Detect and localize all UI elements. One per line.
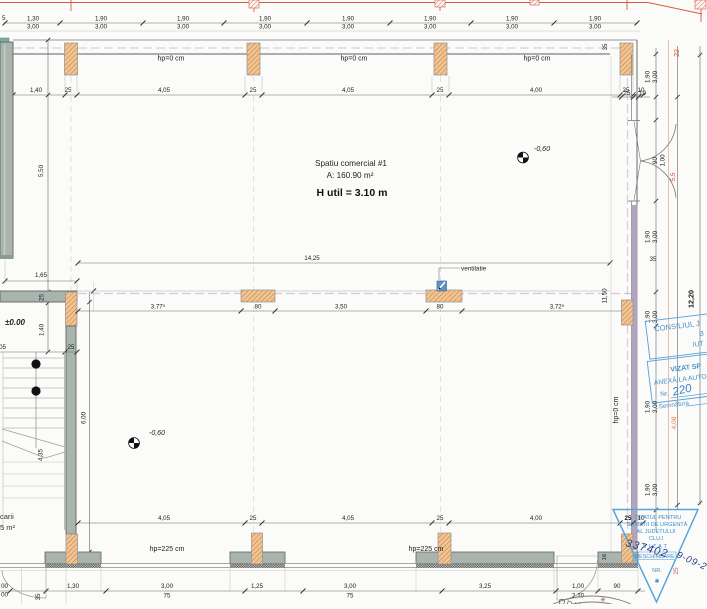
svg-text:3,00: 3,00: [342, 24, 355, 31]
svg-text:4,05: 4,05: [158, 515, 171, 522]
svg-text:4,08: 4,08: [671, 416, 678, 429]
svg-text:H util = 3.10 m: H util = 3.10 m: [317, 187, 388, 199]
svg-text:hp=0 cm: hp=0 cm: [523, 56, 550, 63]
svg-text:3,72⁵: 3,72⁵: [550, 304, 565, 311]
svg-text:3,00: 3,00: [506, 24, 519, 31]
svg-text:1,25: 1,25: [251, 583, 264, 590]
svg-text:3,00: 3,00: [161, 583, 174, 590]
svg-text:✱: ✱: [654, 578, 659, 585]
svg-text:75: 75: [164, 593, 171, 600]
svg-text:25: 25: [624, 90, 631, 97]
svg-text:5: 5: [2, 15, 6, 22]
svg-text:1,90: 1,90: [342, 16, 355, 23]
svg-text:3,00: 3,00: [424, 24, 437, 31]
svg-text:hp=0 cm: hp=0 cm: [613, 396, 620, 423]
svg-text:05: 05: [0, 344, 7, 351]
svg-text:80: 80: [437, 304, 444, 311]
svg-text:1,90: 1,90: [95, 16, 108, 23]
svg-text:3,00: 3,00: [27, 24, 40, 31]
svg-text:35: 35: [603, 43, 609, 50]
svg-text:5,5: 5,5: [670, 172, 677, 181]
svg-text:4,05: 4,05: [342, 515, 355, 522]
svg-text:Spatiu comercial #1: Spatiu comercial #1: [315, 159, 387, 168]
svg-text:25: 25: [250, 515, 257, 522]
svg-text:hp=0 cm: hp=0 cm: [157, 56, 184, 63]
svg-text:25: 25: [437, 515, 444, 522]
svg-text:22: 22: [674, 49, 681, 57]
svg-text:90: 90: [652, 157, 659, 164]
svg-text:1,90: 1,90: [645, 400, 652, 413]
svg-text:carii: carii: [0, 512, 14, 521]
svg-text:4,05: 4,05: [342, 87, 355, 94]
svg-text:3,00: 3,00: [652, 310, 659, 323]
svg-text:35: 35: [36, 593, 42, 600]
svg-text:AL JUDETULUI: AL JUDETULUI: [637, 529, 676, 535]
svg-text:5,50: 5,50: [38, 164, 45, 177]
svg-text:NR.: NR.: [652, 568, 662, 574]
svg-text:-0,60: -0,60: [149, 430, 165, 437]
svg-text:±0.00: ±0.00: [5, 318, 26, 327]
svg-text:25: 25: [39, 294, 46, 301]
svg-text:Nr.: Nr.: [660, 390, 669, 398]
svg-text:A: 160.90 m²: A: 160.90 m²: [327, 171, 374, 180]
svg-text:12,20: 12,20: [687, 290, 696, 308]
svg-text:1,30: 1,30: [27, 16, 40, 23]
svg-text:1,00: 1,00: [572, 583, 585, 590]
svg-text:1,90: 1,90: [645, 230, 652, 243]
svg-text:CLUJ: CLUJ: [649, 536, 663, 542]
svg-text:14,25: 14,25: [304, 255, 320, 262]
svg-text:3,00: 3,00: [652, 483, 659, 496]
svg-text:✳: ✳: [600, 596, 606, 604]
svg-text:3,00: 3,00: [259, 24, 272, 31]
svg-text:3,00: 3,00: [652, 230, 659, 243]
svg-text:4,00: 4,00: [530, 87, 543, 94]
svg-text:3,00: 3,00: [177, 24, 190, 31]
svg-text:25: 25: [673, 567, 680, 575]
svg-text:1,90: 1,90: [259, 16, 272, 23]
svg-text:1,90: 1,90: [424, 16, 437, 23]
svg-text:hp=225 cm: hp=225 cm: [409, 546, 444, 553]
svg-text:80: 80: [255, 304, 262, 311]
svg-text:1,00: 1,00: [660, 154, 667, 167]
svg-text:3,00: 3,00: [589, 24, 602, 31]
svg-text:25: 25: [68, 344, 75, 351]
svg-text:5 m²: 5 m²: [0, 523, 16, 532]
svg-text:-0,60: -0,60: [534, 146, 550, 153]
svg-text:hp=0 cm: hp=0 cm: [340, 56, 367, 63]
svg-text:ventilatie: ventilatie: [461, 266, 487, 273]
svg-text:1,40: 1,40: [39, 323, 46, 336]
svg-text:3,25: 3,25: [479, 583, 492, 590]
svg-text:3,00: 3,00: [652, 70, 659, 83]
svg-text:00: 00: [1, 592, 8, 599]
svg-text:3,50: 3,50: [335, 304, 348, 311]
svg-text:4,00: 4,00: [530, 515, 543, 522]
svg-text:ORATUL PENTRU: ORATUL PENTRU: [635, 515, 682, 521]
svg-text:1,90: 1,90: [645, 70, 652, 83]
svg-text:00: 00: [1, 583, 8, 590]
svg-text:75: 75: [347, 593, 354, 600]
svg-text:1,30: 1,30: [67, 583, 80, 590]
svg-text:11,50: 11,50: [602, 288, 609, 304]
svg-text:10: 10: [639, 90, 646, 97]
svg-text:90: 90: [614, 583, 621, 590]
svg-text:4,35: 4,35: [38, 448, 45, 461]
svg-text:hp=225 cm: hp=225 cm: [150, 546, 185, 553]
svg-text:1,65: 1,65: [35, 272, 48, 279]
svg-text:16: 16: [602, 554, 608, 560]
svg-text:3,00: 3,00: [95, 24, 108, 31]
svg-text:IUT: IUT: [692, 340, 705, 348]
svg-text:3,00: 3,00: [344, 583, 357, 590]
svg-text:1,90: 1,90: [645, 483, 652, 496]
svg-text:1,90: 1,90: [589, 16, 602, 23]
svg-text:4,05: 4,05: [158, 87, 171, 94]
svg-text:1,90: 1,90: [177, 16, 190, 23]
svg-text:SITUATII DE URGENTĂ: SITUATII DE URGENTĂ: [627, 521, 688, 528]
svg-text:25: 25: [625, 515, 632, 522]
svg-text:3,77⁵: 3,77⁵: [151, 304, 166, 311]
svg-text:6,00: 6,00: [81, 411, 88, 424]
svg-text:1,90: 1,90: [506, 16, 519, 23]
svg-text:1,40: 1,40: [30, 87, 43, 94]
